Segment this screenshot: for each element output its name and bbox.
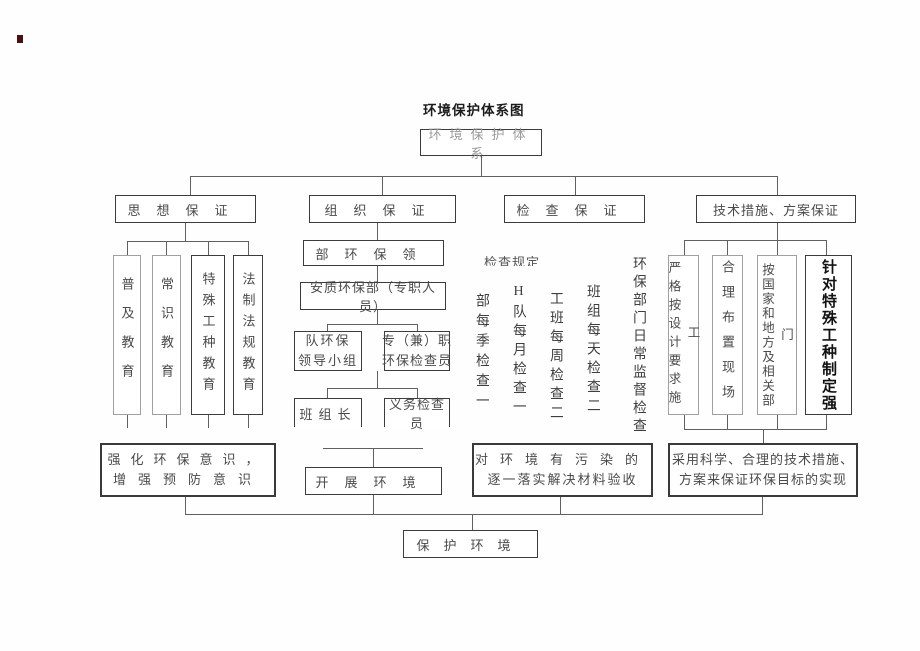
- measure-box-special-trades: 针对特殊工种制定强: [805, 255, 852, 415]
- education-box-special-trades: 特殊工种教育: [191, 255, 225, 415]
- inspection-clipped-header: 检查规定: [484, 256, 544, 266]
- connector-line: [777, 415, 778, 429]
- node-root: 环境保护体系: [420, 129, 542, 156]
- org-outcome-label: 开展环境: [315, 472, 431, 491]
- connector-line: [777, 240, 778, 255]
- connector-line: [208, 241, 209, 255]
- connector-line: [127, 241, 249, 242]
- connector-line: [763, 429, 764, 443]
- branch-inspection-label: 检查保证: [516, 200, 632, 219]
- connector-line: [417, 324, 418, 331]
- inspection-outcome-box: 对环境有污染的 逐一落实解决材料验收: [472, 443, 653, 497]
- connector-line: [166, 241, 167, 255]
- connector-line: [373, 495, 374, 514]
- branch-technical-label: 技术措施、方案保证: [713, 200, 839, 219]
- connector-line: [727, 240, 728, 255]
- connector-line: [327, 388, 418, 389]
- inspection-schedule-weekly-text: 工班每周检查二次: [545, 291, 563, 437]
- branch-inspection: 检查保证: [504, 195, 645, 223]
- inspection-schedule-supervision: 环保部门日常监督检查: [628, 256, 646, 437]
- branch-organization: 组织保证: [309, 195, 456, 223]
- connector-line: [248, 415, 249, 428]
- goal-box: 保护环境: [403, 530, 538, 558]
- inspection-schedule-monthly-text: H队每月检查一次: [508, 284, 526, 434]
- connector-line: [327, 324, 418, 325]
- diagram-title: 环境保护体系图: [423, 99, 553, 119]
- connector-line: [185, 514, 763, 515]
- connector-line: [373, 448, 374, 467]
- connector-line: [248, 241, 249, 255]
- org-team-env-leading-group: 队环保 领导小组: [294, 331, 362, 371]
- inspection-outcome-line1: 对环境有污染的: [475, 450, 650, 470]
- education-box-universal: 普及教育: [113, 255, 141, 415]
- thought-outcome-line1: 强化环保意识，: [107, 450, 268, 470]
- connector-line: [382, 176, 383, 195]
- connector-line: [166, 415, 167, 428]
- inspection-schedule-quarterly: 部每季检查一次: [471, 293, 489, 428]
- connector-line: [684, 240, 685, 255]
- inspection-schedule-monthly: H队每月检查一次: [508, 284, 526, 434]
- measure-box-regulations-label: 按国家和地方及相关部门: [758, 256, 796, 414]
- inspection-schedule-daily-text: 班组每天检查二次: [582, 284, 600, 426]
- org-outcome-box: 开展环境: [305, 467, 442, 495]
- measure-box-site-layout: 合理布置现场: [712, 255, 743, 415]
- connector-line: [777, 223, 778, 240]
- connector-line: [684, 240, 827, 241]
- org-safety-quality-dept: 安质环保部（专职人员）: [300, 282, 446, 310]
- connector-line: [826, 240, 827, 255]
- inspection-schedule-quarterly-text: 部每季检查一次: [471, 293, 489, 428]
- goal-label: 保护环境: [416, 535, 524, 554]
- measure-box-design-compliance-label: 严格按设计要求施工: [665, 256, 703, 414]
- connector-line: [185, 223, 186, 241]
- technical-outcome-line2: 方案来保证环保目标的实现: [679, 470, 847, 490]
- connector-line: [472, 514, 473, 530]
- technical-outcome-box: 采用科学、合理的技术措施、 方案来保证环保目标的实现: [668, 443, 858, 497]
- education-box-common-sense: 常识教育: [152, 255, 181, 415]
- connector-line: [684, 429, 827, 430]
- measure-box-site-layout-label: 合理布置现场: [718, 260, 737, 410]
- connector-line: [481, 156, 482, 176]
- branch-thought-label: 思想保证: [127, 200, 243, 219]
- inspection-schedule-supervision-text: 环保部门日常监督检查: [628, 256, 646, 436]
- org-squad-leader: 班组长: [294, 398, 362, 427]
- org-safety-quality-dept-label: 安质环保部（专职人员）: [301, 277, 445, 315]
- org-dept-env-leader-label: 部环保领: [315, 244, 431, 263]
- technical-outcome-line1: 采用科学、合理的技术措施、: [672, 450, 854, 470]
- org-parttime-env-inspector: 专（兼）职 环保检查员: [384, 331, 450, 371]
- inspection-outcome-line2: 逐一落实解决材料验收: [487, 470, 637, 490]
- connector-line: [727, 415, 728, 429]
- org-team-env-leading-group-line2: 领导小组: [298, 351, 358, 371]
- education-box-common-sense-label: 常识教育: [157, 277, 176, 393]
- org-parttime-env-inspector-line2: 环保检查员: [382, 351, 452, 371]
- connector-line: [777, 176, 778, 195]
- connector-line: [826, 415, 827, 429]
- connector-line: [327, 388, 328, 398]
- org-dept-env-leader: 部环保领: [303, 240, 444, 266]
- org-volunteer-inspector: 义务检查员: [384, 398, 450, 427]
- org-squad-leader-label: 班组长: [299, 404, 356, 423]
- measure-box-design-compliance: 严格按设计要求施工: [668, 255, 699, 415]
- measure-box-special-trades-label: 针对特殊工种制定强: [818, 259, 839, 412]
- connector-line: [127, 241, 128, 255]
- branch-technical: 技术措施、方案保证: [696, 195, 856, 223]
- connector-line: [327, 324, 328, 331]
- inspection-schedule-daily: 班组每天检查二次: [582, 284, 600, 426]
- connector-line: [575, 176, 576, 195]
- education-box-universal-label: 普及教育: [118, 277, 137, 393]
- page-artifact-mark: [17, 35, 23, 43]
- diagram-canvas: 环境保护体系图 环境保护体系 思想保证 组织保证 检查保证 技术措施、方案保证 …: [0, 0, 920, 651]
- org-team-env-leading-group-line1: 队环保: [305, 331, 350, 351]
- thought-outcome-box: 强化环保意识， 增强预防意识: [100, 443, 276, 497]
- connector-line: [127, 415, 128, 428]
- measure-box-regulations: 按国家和地方及相关部门: [757, 255, 797, 415]
- branch-organization-label: 组织保证: [324, 200, 440, 219]
- inspection-schedule-weekly: 工班每周检查二次: [545, 291, 563, 437]
- connector-line: [377, 371, 378, 388]
- education-box-legal-label: 法制法规教育: [239, 272, 258, 398]
- connector-line: [190, 176, 778, 177]
- connector-line: [190, 176, 191, 195]
- connector-line: [208, 415, 209, 428]
- connector-line: [762, 497, 763, 514]
- connector-line: [185, 497, 186, 514]
- connector-line: [377, 223, 378, 240]
- education-box-legal: 法制法规教育: [233, 255, 263, 415]
- connector-line: [684, 415, 685, 429]
- branch-thought: 思想保证: [115, 195, 256, 223]
- education-box-special-trades-label: 特殊工种教育: [199, 272, 218, 398]
- org-volunteer-inspector-label: 义务检查员: [385, 394, 449, 432]
- thought-outcome-line2: 增强预防意识: [113, 470, 263, 490]
- org-parttime-env-inspector-line1: 专（兼）职: [382, 331, 452, 351]
- connector-line: [560, 497, 561, 514]
